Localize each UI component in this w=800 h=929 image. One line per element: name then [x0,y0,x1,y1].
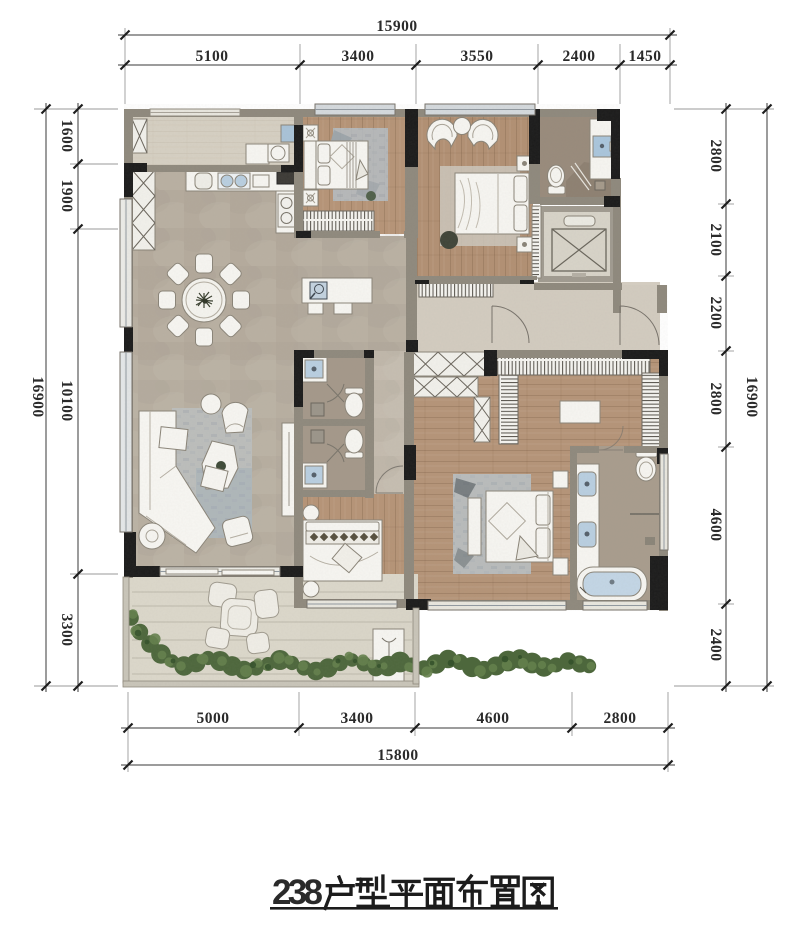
svg-text:2800: 2800 [707,383,724,416]
svg-text:15800: 15800 [377,747,418,764]
svg-text:16900: 16900 [29,376,46,417]
svg-text:238: 238 [272,873,323,912]
svg-text:2200: 2200 [707,297,724,330]
svg-text:3400: 3400 [341,710,374,727]
svg-text:3400: 3400 [342,48,375,65]
svg-text:2800: 2800 [604,710,637,727]
svg-text:2800: 2800 [707,140,724,173]
svg-text:2100: 2100 [707,224,724,257]
svg-text:5000: 5000 [197,710,230,727]
svg-text:1600: 1600 [58,120,75,153]
svg-text:3300: 3300 [58,614,75,647]
svg-text:2400: 2400 [707,629,724,662]
svg-text:1450: 1450 [629,48,662,65]
svg-text:10100: 10100 [58,380,75,421]
svg-text:4600: 4600 [477,710,510,727]
svg-text:5100: 5100 [196,48,229,65]
svg-text:15900: 15900 [376,18,417,35]
svg-text:16900: 16900 [743,376,760,417]
svg-text:1900: 1900 [58,180,75,213]
svg-text:2400: 2400 [563,48,596,65]
svg-text:4600: 4600 [707,509,724,542]
svg-text:3550: 3550 [461,48,494,65]
